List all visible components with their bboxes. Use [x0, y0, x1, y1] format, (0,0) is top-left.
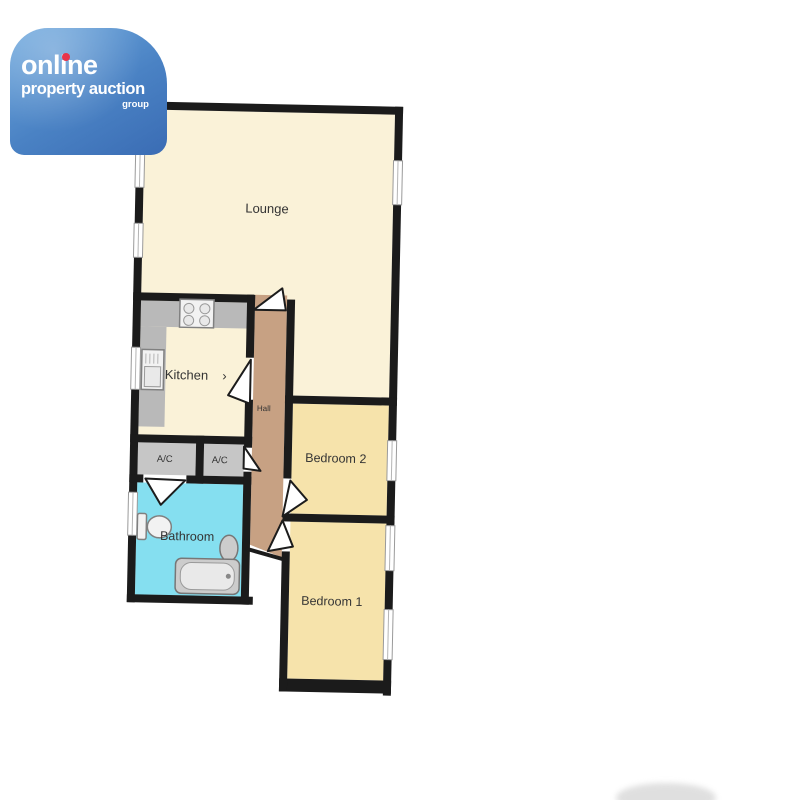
ac-left-label: A/C — [157, 454, 173, 465]
kitchen-door-arrow: › — [222, 368, 227, 383]
logo-red-dot-icon — [62, 53, 70, 61]
wall-ac-divider — [195, 436, 204, 484]
wall-hall-left-b — [244, 400, 253, 448]
window — [385, 526, 395, 571]
hall-label: Hall — [257, 404, 271, 413]
logo-line-group: group — [21, 99, 159, 110]
window — [128, 492, 138, 535]
window — [383, 610, 393, 660]
logo-wordmark: online — [21, 52, 98, 79]
bathroom-label: Bathroom — [160, 529, 214, 544]
brand-logo: online property auction group — [10, 28, 167, 155]
window — [393, 161, 403, 205]
window — [133, 223, 143, 257]
window — [387, 441, 397, 481]
ac-right-label: A/C — [212, 455, 228, 466]
bathroom-sink — [220, 535, 239, 561]
stove-burner — [184, 303, 194, 313]
bedroom2-label: Bedroom 2 — [305, 451, 366, 466]
page: Lounge Kitchen › Hall A/C A/C Bathroom B… — [0, 0, 800, 800]
hall-corridor — [250, 295, 287, 558]
logo-line-online: online — [21, 52, 98, 79]
stove-burner — [200, 304, 210, 314]
kitchen-label: Kitchen — [165, 367, 209, 383]
wall-bedroom1-bottom — [279, 678, 391, 693]
bedroom1-label: Bedroom 1 — [301, 594, 362, 609]
wall-hall-left-a — [246, 295, 255, 358]
wall-ac-bath-left — [129, 474, 143, 482]
kitchen-sink-basin — [144, 366, 160, 386]
stove-burner — [200, 316, 210, 326]
stove-burner — [184, 315, 194, 325]
toilet-cistern — [137, 513, 147, 539]
floorplan: Lounge Kitchen › Hall A/C A/C Bathroom B… — [124, 101, 403, 695]
lounge-label: Lounge — [245, 201, 289, 217]
window — [131, 347, 141, 389]
logo-line-property-auction: property auction — [21, 81, 159, 98]
